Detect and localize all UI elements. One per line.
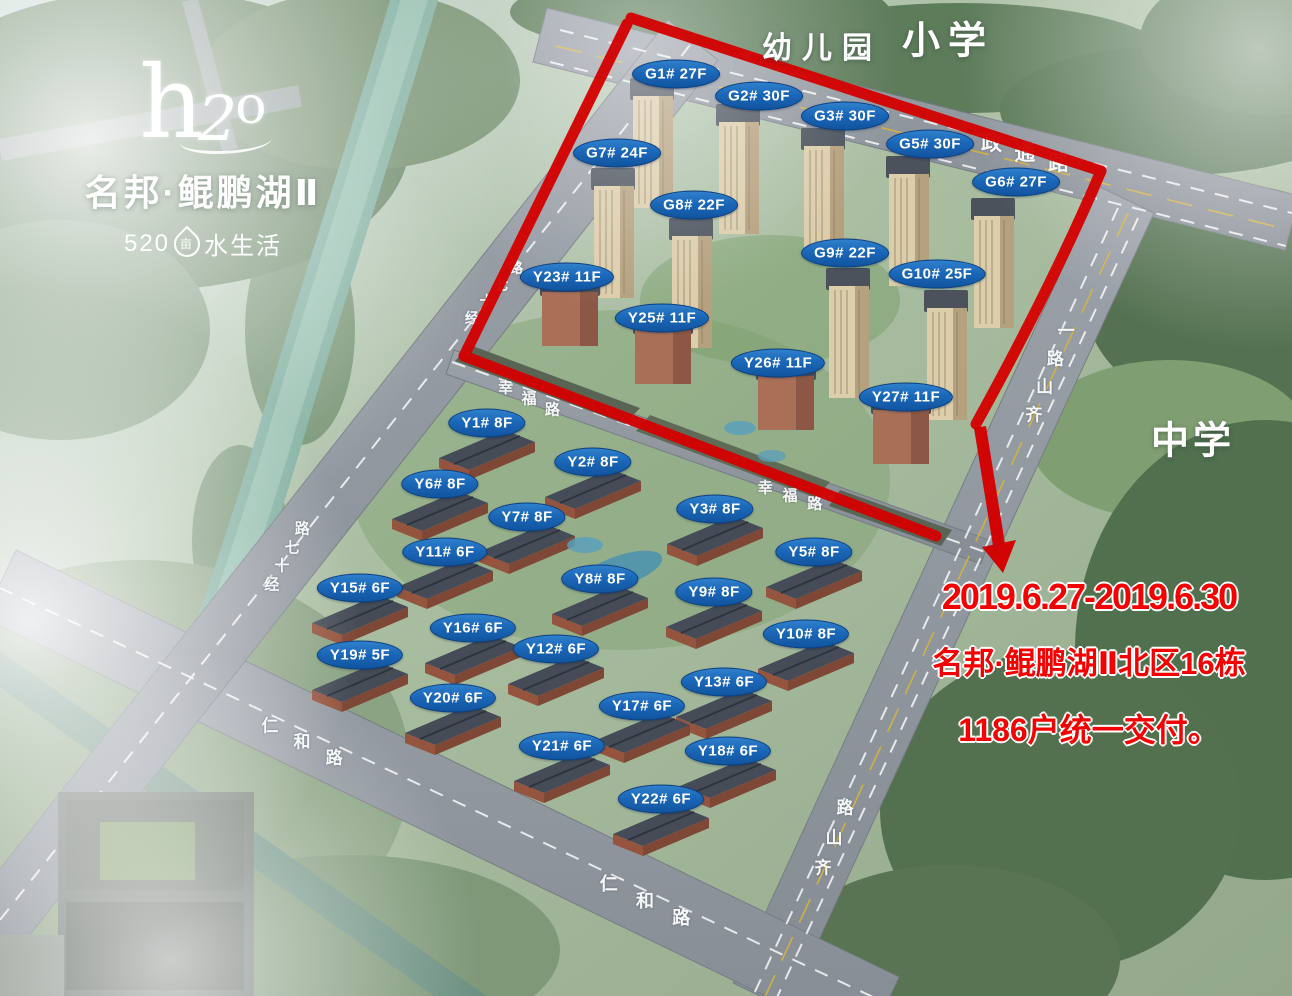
masterplan-image: 政通路经十七路经十七路幸福路幸福路齐山路一齐山路仁和路仁和路 G1# 27FG2… — [0, 0, 1292, 996]
water-drop-icon: 亩 — [169, 225, 206, 262]
delivery-annotation: 2019.6.27-2019.6.30 名邦·鲲鹏湖Ⅱ北区16栋 1186户统一… — [898, 576, 1280, 751]
slogan-prefix: 520 — [124, 230, 170, 258]
callout-arrow — [974, 426, 1016, 573]
delivery-project: 名邦·鲲鹏湖Ⅱ北区16栋 — [898, 638, 1280, 683]
brand-mark: h2o — [38, 28, 368, 148]
delivery-units: 1186户统一交付。 — [898, 705, 1280, 751]
brand-mark-o: o — [235, 80, 266, 132]
slogan-suffix: 水生活 — [204, 226, 282, 261]
project-slogan: 520 亩 水生活 — [38, 226, 368, 261]
project-title: 名邦·鲲鹏湖Ⅱ — [38, 164, 368, 216]
delivery-dates: 2019.6.27-2019.6.30 — [898, 576, 1280, 618]
brand-mark-swoosh — [180, 127, 272, 154]
highlight-outline — [464, 18, 1101, 536]
brand-logo: h2o 名邦·鲲鹏湖Ⅱ 520 亩 水生活 — [38, 28, 368, 261]
